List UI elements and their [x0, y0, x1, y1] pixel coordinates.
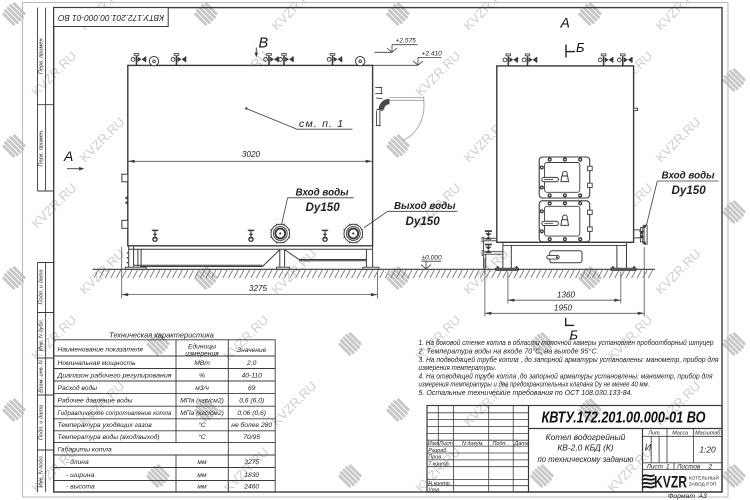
svg-text:3. На подводящей трубе котла: 3. На подводящей трубе котла , до запорн…: [419, 356, 719, 364]
svg-text:А: А: [63, 148, 73, 164]
svg-text:1: 1: [666, 463, 670, 470]
svg-text:Выход воды: Выход воды: [394, 201, 456, 212]
svg-text:Габариты котла: Габариты котла: [58, 445, 112, 453]
svg-text:мм: мм: [197, 472, 207, 479]
svg-text:МВт: МВт: [194, 360, 210, 367]
svg-text:4. На отводящей трубе котла ,: 4. На отводящей трубе котла ,до запорной…: [419, 372, 713, 380]
svg-text:%: %: [199, 372, 205, 379]
svg-text:1:20: 1:20: [699, 445, 716, 455]
svg-text:±0.000: ±0.000: [422, 254, 442, 261]
svg-text:И: И: [645, 443, 652, 453]
svg-text:Перв. примен.: Перв. примен.: [39, 37, 45, 74]
svg-text:м3/ч: м3/ч: [195, 385, 209, 392]
svg-text:МПа (кгс/см2): МПа (кгс/см2): [180, 398, 224, 405]
svg-text:Значение: Значение: [237, 347, 267, 354]
svg-text:не более 280: не более 280: [231, 421, 272, 429]
svg-text:Диапазон рабочего регулировани: Диапазон рабочего регулирования: [56, 371, 171, 379]
svg-text:°С: °С: [198, 421, 206, 429]
svg-text:Перв. примен.: Перв. примен.: [39, 129, 45, 166]
svg-text:А3: А3: [698, 493, 708, 500]
svg-text:1. На боковой стенке котла в: 1. На боковой стенке котла в области топ…: [419, 339, 714, 347]
svg-text:Подп. и дата: Подп. и дата: [39, 269, 45, 304]
svg-text:Dy150: Dy150: [406, 215, 441, 228]
svg-text:- длина: - длина: [66, 458, 89, 466]
svg-text:измерения: измерения: [185, 350, 219, 357]
svg-text:Инв. N подл.: Инв. N подл.: [39, 455, 45, 488]
svg-text:69: 69: [248, 385, 256, 392]
svg-text:В: В: [259, 36, 269, 52]
svg-text:МПа (кгс/см2): МПа (кгс/см2): [180, 410, 224, 417]
svg-text:+2.410: +2.410: [422, 50, 443, 57]
svg-text:Н.контр.: Н.контр.: [428, 481, 451, 487]
svg-text:Б: Б: [576, 40, 585, 55]
svg-text:Взам. инв. N: Взам. инв. N: [39, 359, 45, 393]
svg-text:Подп. и дата: Подп. и дата: [39, 405, 45, 440]
svg-text:Рабочее давление воды: Рабочее давление воды: [58, 397, 133, 405]
svg-text:Листов: Листов: [676, 463, 701, 470]
svg-text:3275: 3275: [244, 459, 259, 466]
svg-text:0,06 (0,6): 0,06 (0,6): [237, 410, 266, 417]
svg-text:Температура уходящих газов: Температура уходящих газов: [58, 421, 153, 429]
svg-text:Разраб.: Разраб.: [428, 448, 448, 454]
svg-text:Температура воды (вход/выход): Температура воды (вход/выход): [58, 433, 160, 441]
svg-text:Т.контр.: Т.контр.: [428, 462, 450, 468]
svg-text:Утв.: Утв.: [427, 487, 440, 493]
svg-text:Формат: Формат: [668, 493, 695, 500]
svg-text:0,6 (6,0): 0,6 (6,0): [239, 398, 264, 405]
svg-text:КВТУ.172.201.00.000-01 ВО: КВТУ.172.201.00.000-01 ВО: [542, 410, 706, 427]
svg-text:2460: 2460: [243, 483, 259, 490]
svg-text:+2.575: +2.575: [396, 38, 417, 45]
svg-text:А: А: [560, 15, 570, 31]
svg-text:Масштаб: Масштаб: [695, 431, 721, 437]
svg-text:Вход воды: Вход воды: [296, 187, 350, 198]
svg-text:1360: 1360: [557, 290, 576, 299]
svg-text:Гидравлическое сопротивление к: Гидравлическое сопротивление котла: [58, 409, 172, 417]
svg-text:°С: °С: [198, 433, 206, 441]
svg-text:измерения температуры и два пр: измерения температуры и два предохраните…: [419, 381, 650, 389]
svg-text:Техническая характеристика: Техническая характеристика: [109, 331, 214, 340]
svg-text:Dy150: Dy150: [672, 184, 707, 197]
svg-text:мм: мм: [197, 483, 207, 490]
svg-text:Подп.: Подп.: [493, 441, 507, 447]
svg-text:Номинальная мощность: Номинальная мощность: [58, 360, 137, 367]
svg-text:3020: 3020: [242, 150, 261, 159]
svg-text:Расход воды: Расход воды: [58, 384, 98, 392]
svg-text:Вход воды: Вход воды: [662, 170, 716, 181]
svg-text:КВ-2,0 КБД (К): КВ-2,0 КБД (К): [557, 443, 613, 453]
svg-text:2: 2: [708, 463, 713, 470]
svg-text:Наименование показателя: Наименование показателя: [58, 347, 144, 354]
svg-text:ЗАВОД РЭП: ЗАВОД РЭП: [689, 481, 717, 487]
svg-text:по техническому заданию: по техническому заданию: [538, 454, 635, 464]
svg-text:3275: 3275: [249, 284, 268, 293]
svg-text:Лит.: Лит.: [647, 431, 661, 437]
svg-text:Лист: Лист: [646, 463, 664, 470]
svg-text:5. Остальные технические треб: 5. Остальные технические требования по О…: [419, 389, 633, 397]
svg-text:1830: 1830: [244, 472, 259, 479]
svg-text:Дата: Дата: [514, 441, 529, 447]
svg-text:Dy150: Dy150: [306, 201, 341, 214]
svg-text:2. Температура воды на входе: 2. Температура воды на входе 70°С, на вы…: [417, 347, 598, 355]
svg-text:Единицы: Единицы: [188, 342, 216, 350]
svg-text:Инв. N дубл.: Инв. N дубл.: [39, 319, 45, 351]
svg-text:KVZR: KVZR: [654, 473, 687, 492]
svg-text:N докум.: N докум.: [462, 441, 484, 447]
svg-text:Масса: Масса: [672, 431, 688, 437]
svg-text:см. п. 1: см. п. 1: [299, 118, 344, 130]
svg-text:Изм.: Изм.: [428, 441, 440, 447]
svg-text:Пров.: Пров.: [428, 455, 442, 461]
svg-text:КВТУ.172.201.00.000-01 ВО: КВТУ.172.201.00.000-01 ВО: [58, 13, 164, 23]
svg-text:1950: 1950: [554, 304, 573, 313]
svg-text:40-110: 40-110: [242, 372, 263, 379]
svg-text:- ширина: - ширина: [66, 472, 94, 479]
svg-text:измерения температуры.: измерения температуры.: [419, 364, 497, 372]
svg-text:- высота: - высота: [66, 483, 95, 490]
svg-text:2,0: 2,0: [246, 360, 257, 367]
svg-text:70/95: 70/95: [243, 434, 260, 441]
svg-text:Котел водогрейный: Котел водогрейный: [546, 432, 626, 442]
svg-text:Лист: Лист: [438, 441, 453, 447]
svg-text:мм: мм: [197, 459, 207, 466]
